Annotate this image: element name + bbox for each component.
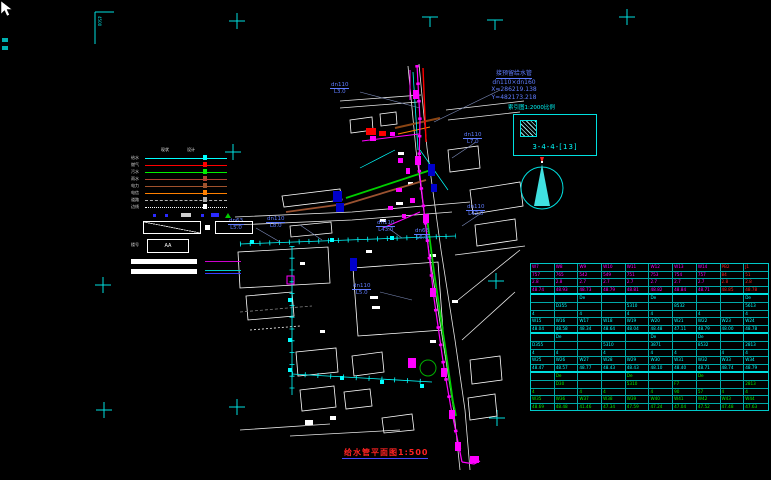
pipe-label: dn110L8.0 <box>266 216 285 229</box>
table-cell: 4 <box>697 311 721 318</box>
table-cell: W43 <box>721 396 745 403</box>
table-cell <box>697 381 721 388</box>
table-cell: D355 <box>531 342 555 349</box>
table-cell: W24 <box>744 318 768 325</box>
table-cell <box>697 303 721 310</box>
legend-aa-row: 楼号 AA <box>131 239 253 253</box>
legend-header-design: 设计 <box>187 147 195 153</box>
table-cell: W8 <box>555 264 579 271</box>
table-cell: W17 <box>578 318 602 325</box>
table-cell: 48.69 <box>531 404 555 411</box>
table-row: W35W36W37W38W39W40W41W42W43W44 <box>531 396 768 404</box>
table-cell: 48.73 <box>578 287 602 294</box>
table-cell: 47.48 <box>721 404 745 411</box>
table-cell: 4 <box>578 311 602 318</box>
table-row: W25W26W27W28W29W30W31W32W33W34 <box>531 357 768 365</box>
table-cell: W33 <box>721 357 745 364</box>
table-group: W7W8W9W10W11W12W13W14PB2J175776554254975… <box>531 264 768 295</box>
table-cell: W20 <box>649 318 673 325</box>
table-cell <box>721 311 745 318</box>
table-cell: 2.7 <box>673 279 697 286</box>
table-cell: 2.7 <box>626 279 650 286</box>
table-cell: 2.7 <box>602 279 626 286</box>
table-cell: 3871 <box>649 342 673 349</box>
table-cell: 48.34 <box>578 326 602 333</box>
table-cell <box>649 381 673 388</box>
table-cell: 757 <box>697 272 721 279</box>
table-cell: 48.43 <box>602 365 626 372</box>
table-cell: 4 <box>744 389 768 396</box>
legend-item: 边线 <box>131 204 253 211</box>
table-cell: W30 <box>649 357 673 364</box>
table-cell: 542 <box>578 272 602 279</box>
table-cell: 48.78 <box>744 326 768 333</box>
table-cell: 47.52 <box>697 404 721 411</box>
table-cell: 8532 <box>673 303 697 310</box>
table-cell <box>649 303 673 310</box>
table-cell <box>697 350 721 357</box>
table-cell: 4 <box>531 389 555 396</box>
table-cell: F7 <box>673 381 697 388</box>
table-cell <box>721 381 745 388</box>
north-arrow <box>521 157 563 209</box>
table-row: 48.6948.4841.4647.3447.5947.2447.0447.52… <box>531 404 768 411</box>
table-row: DeDeDe <box>531 373 768 381</box>
table-cell <box>626 334 650 341</box>
table-cell <box>626 350 650 357</box>
table-cell: 4 <box>649 350 673 357</box>
cyan-key-line <box>205 270 241 271</box>
table-cell: De <box>626 373 650 380</box>
legend-item: 给水 <box>131 155 253 162</box>
hydrant-symbols <box>250 236 424 388</box>
table-cell: 47.34 <box>602 404 626 411</box>
legend-item: 雨水 <box>131 176 253 183</box>
table-cell: 2813 <box>744 342 768 349</box>
table-cell: 48.64 <box>602 326 626 333</box>
table-cell: 48.71 <box>697 287 721 294</box>
mouse-cursor <box>0 0 14 18</box>
road-edges <box>235 64 525 470</box>
drawing-title-underline <box>342 458 428 459</box>
table-cell: 48.81 <box>626 287 650 294</box>
valve-nodes <box>370 90 479 463</box>
table-cell: 48.74 <box>531 287 555 294</box>
table-cell: De <box>555 334 579 341</box>
table-cell: 48.85 <box>721 287 745 294</box>
table-cell <box>649 373 673 380</box>
table-cell <box>578 334 602 341</box>
table-cell: 47.59 <box>626 404 650 411</box>
table-cell: W42 <box>697 396 721 403</box>
pipe-label: dn110L43.0 <box>376 220 395 233</box>
table-cell: W22 <box>697 318 721 325</box>
hatch-swatch-icon <box>520 120 537 137</box>
table-row: 48.4748.5748.7748.4348.4348.1048.4048.71… <box>531 365 768 372</box>
table-cell: J1 <box>744 264 768 271</box>
table-cell: W39 <box>626 396 650 403</box>
table-cell: W44 <box>744 396 768 403</box>
table-row: DeDeDe <box>531 334 768 342</box>
table-cell: De <box>649 295 673 302</box>
table-cell <box>602 334 626 341</box>
table-cell: 51 <box>744 272 768 279</box>
table-cell <box>555 311 579 318</box>
table-cell <box>697 295 721 302</box>
table-cell: 47.11 <box>673 326 697 333</box>
table-cell: 2.7 <box>578 279 602 286</box>
table-cell: 4 <box>649 389 673 396</box>
table-cell: 4 <box>555 350 579 357</box>
connection-annotation: 接预留给水管 dn110×dn160 X=286219.138 Y=482173… <box>468 70 560 101</box>
table-row: 7577655425497517537547578451 <box>531 272 768 280</box>
table-cell <box>555 342 579 349</box>
table-cell: 8532 <box>697 342 721 349</box>
table-cell: W14 <box>697 264 721 271</box>
coordinate-y: Y=482173.218 <box>492 94 537 101</box>
table-cell <box>673 373 697 380</box>
table-cell: 48.40 <box>673 365 697 372</box>
table-cell: 48.48 <box>555 404 579 411</box>
table-cell: W10 <box>602 264 626 271</box>
table-cell <box>578 381 602 388</box>
table-cell <box>531 295 555 302</box>
table-cell: 4 <box>721 389 745 396</box>
table-cell: W31 <box>673 357 697 364</box>
legend-panel: 现状 设计 给水燃气污水雨水电力电信道路边线 楼号 AA <box>131 147 253 203</box>
table-cell <box>744 373 768 380</box>
table-cell: 4 <box>744 311 768 318</box>
table-cell: 751 <box>626 272 650 279</box>
legend-item: 污水 <box>131 169 253 176</box>
table-row: W15W16W17W18W19W20W21W22W23W24 <box>531 318 768 326</box>
table-cell: 48.78 <box>744 287 768 294</box>
table-cell: D355 <box>555 303 579 310</box>
table-cell <box>531 381 555 388</box>
table-cell: 48.79 <box>744 365 768 372</box>
table-cell: W16 <box>555 318 579 325</box>
table-cell <box>721 373 745 380</box>
magenta-key-line <box>205 261 241 262</box>
legend-symbol-row <box>145 213 245 219</box>
table-cell: W29 <box>626 357 650 364</box>
table-cell: W21 <box>673 318 697 325</box>
table-cell: 5613 <box>744 303 768 310</box>
legend-aa-box: AA <box>147 239 189 253</box>
table-cell: 2.8 <box>721 279 745 286</box>
table-row: DeDeDe <box>531 295 768 303</box>
table-cell: W11 <box>626 264 650 271</box>
table-cell: W37 <box>578 396 602 403</box>
pipe-label: dn110L3.0 <box>330 82 349 95</box>
table-row: 48.0448.5848.3448.6448.0448.4847.1148.79… <box>531 326 768 333</box>
table-cell: 41.46 <box>578 404 602 411</box>
table-cell: W25 <box>531 357 555 364</box>
table-cell <box>531 303 555 310</box>
legend-item: 道路 <box>131 197 253 204</box>
table-cell: 754 <box>673 272 697 279</box>
table-cell: 47.24 <box>649 404 673 411</box>
table-cell: 4 <box>744 350 768 357</box>
table-cell <box>578 350 602 357</box>
table-cell <box>531 334 555 341</box>
table-cell: W36 <box>555 396 579 403</box>
table-cell <box>744 334 768 341</box>
table-cell <box>602 373 626 380</box>
table-cell <box>578 373 602 380</box>
table-cell: W28 <box>602 357 626 364</box>
table-cell <box>602 295 626 302</box>
table-row: W7W8W9W10W11W12W13W14PB2J1 <box>531 264 768 272</box>
table-group: DeDeDeD35553103871853228134444444W25W26W… <box>531 334 768 373</box>
cad-sheet[interactable]: 4500 dn110L3.0 dn63L5.0 dn110L8.0 dn110L… <box>0 0 771 480</box>
table-cell: 5310 <box>602 342 626 349</box>
table-cell: 48.79 <box>602 287 626 294</box>
table-cell: 4 <box>531 311 555 318</box>
table-cell <box>626 389 650 396</box>
table-cell <box>626 342 650 349</box>
connection-title: 接预留给水管 <box>496 70 532 79</box>
table-cell: W34 <box>744 357 768 364</box>
table-cell: W13 <box>673 264 697 271</box>
table-cell: De <box>697 373 721 380</box>
table-cell: 4 <box>531 350 555 357</box>
table-cell: W35 <box>531 396 555 403</box>
table-cell: PB2 <box>721 264 745 271</box>
table-cell: 48.84 <box>673 287 697 294</box>
table-cell: 5310 <box>626 303 650 310</box>
table-cell: 4 <box>602 350 626 357</box>
table-cell: W18 <box>602 318 626 325</box>
table-cell: 48.71 <box>697 365 721 372</box>
table-group: DeDeDeD305310F728134444905744W35W36W37W3… <box>531 373 768 410</box>
table-row: 48.7448.9348.7348.7948.8148.8248.8448.71… <box>531 287 768 294</box>
table-cell: 48.82 <box>649 287 673 294</box>
table-cell: 48.57 <box>555 365 579 372</box>
table-group: DeDeDeD355531085325613444444W15W16W17W18… <box>531 295 768 334</box>
coordinate-x: X=286219.138 <box>491 86 536 93</box>
table-cell: De <box>649 334 673 341</box>
table-cell: W9 <box>578 264 602 271</box>
table-cell: W7 <box>531 264 555 271</box>
table-cell: W26 <box>555 357 579 364</box>
table-cell: 48.93 <box>555 287 579 294</box>
table-cell: 90 <box>673 389 697 396</box>
table-row: 4444444 <box>531 350 768 358</box>
magenta-main-pipe <box>287 65 480 464</box>
table-cell: W27 <box>578 357 602 364</box>
table-cell: 47.63 <box>744 404 768 411</box>
table-row: D355531085325613 <box>531 303 768 311</box>
table-cell: 4 <box>721 350 745 357</box>
table-cell <box>673 295 697 302</box>
table-cell <box>721 295 745 302</box>
table-cell: 549 <box>602 272 626 279</box>
table-cell <box>555 295 579 302</box>
table-cell: 2.7 <box>697 279 721 286</box>
pipe-label: dn110L5.0 <box>352 283 371 296</box>
table-cell: 48.04 <box>531 326 555 333</box>
scale-bar-1 <box>131 259 197 264</box>
table-cell: 4 <box>649 311 673 318</box>
table-cell: 4 <box>626 311 650 318</box>
table-cell: 48.04 <box>626 326 650 333</box>
table-cell: 757 <box>531 272 555 279</box>
table-cell: 47.04 <box>673 404 697 411</box>
table-cell: 2813 <box>744 381 768 388</box>
table-cell: 4 <box>673 350 697 357</box>
table-cell: 48.77 <box>578 365 602 372</box>
table-cell <box>673 334 697 341</box>
table-cell <box>721 303 745 310</box>
detail-reference-number: 3-4-4-[13] <box>514 143 596 151</box>
table-cell: W15 <box>531 318 555 325</box>
pipe-label: dn110L7.0 <box>463 132 482 145</box>
scale-bar-2 <box>131 269 197 274</box>
corner-mark-text: 4500 <box>97 16 101 26</box>
index-scale-label: 索引图1:2000比例 <box>508 103 555 111</box>
table-cell: 84 <box>721 272 745 279</box>
table-cell: De <box>578 295 602 302</box>
table-cell: 48.48 <box>649 326 673 333</box>
table-cell: 48.47 <box>531 365 555 372</box>
table-cell: W19 <box>626 318 650 325</box>
legend-header-existing: 现状 <box>161 147 169 153</box>
table-cell: W41 <box>673 396 697 403</box>
elevation-table: W7W8W9W10W11W12W13W14PB2J175776554254975… <box>530 263 769 411</box>
table-cell: D30 <box>555 381 579 388</box>
pipe-label: dn63L6.0 <box>414 228 430 241</box>
detail-reference-box: 3-4-4-[13] <box>513 114 597 156</box>
legend-aa-label: 楼号 <box>131 242 139 248</box>
connection-size: dn110×dn160 <box>492 79 535 86</box>
table-cell <box>673 342 697 349</box>
table-cell: 48.43 <box>626 365 650 372</box>
table-cell: 48.00 <box>721 326 745 333</box>
table-cell: W23 <box>721 318 745 325</box>
drawing-title: 给水管平面图1:500 <box>344 447 428 458</box>
building-outlines <box>238 112 523 433</box>
table-cell: De <box>555 373 579 380</box>
pipe-label: dn110L42.0 <box>466 204 485 217</box>
table-cell <box>531 373 555 380</box>
table-cell: 48.74 <box>721 365 745 372</box>
table-cell: 753 <box>649 272 673 279</box>
table-row: 2.82.82.72.72.72.72.72.72.82.8 <box>531 279 768 287</box>
table-cell: W38 <box>602 396 626 403</box>
legend-item: 燃气 <box>131 162 253 169</box>
table-cell: 48.10 <box>649 365 673 372</box>
table-row: 444444 <box>531 311 768 319</box>
legend-rows: 给水燃气污水雨水电力电信道路边线 <box>131 155 253 211</box>
table-cell <box>555 389 579 396</box>
legend-item: 电信 <box>131 190 253 197</box>
table-cell: De <box>697 334 721 341</box>
table-cell: W40 <box>649 396 673 403</box>
table-cell: 2.8 <box>531 279 555 286</box>
table-cell: De <box>744 295 768 302</box>
table-cell: 4 <box>578 389 602 396</box>
table-cell: 765 <box>555 272 579 279</box>
table-cell: W32 <box>697 357 721 364</box>
table-cell <box>721 342 745 349</box>
table-cell: 5310 <box>626 381 650 388</box>
table-cell: W12 <box>649 264 673 271</box>
table-cell: 2.8 <box>555 279 579 286</box>
table-cell: 4 <box>602 389 626 396</box>
table-cell: 48.58 <box>555 326 579 333</box>
table-cell <box>602 381 626 388</box>
table-cell: 48.79 <box>697 326 721 333</box>
table-cell <box>721 334 745 341</box>
legend-item: 电力 <box>131 183 253 190</box>
table-cell <box>673 311 697 318</box>
table-cell: 2.8 <box>744 279 768 286</box>
table-cell: 2.7 <box>649 279 673 286</box>
table-row: D305310F72813 <box>531 381 768 389</box>
table-cell <box>626 295 650 302</box>
blue-key-line <box>205 273 241 274</box>
table-cell <box>578 342 602 349</box>
table-cell <box>602 311 626 318</box>
table-cell <box>578 303 602 310</box>
table-cell <box>602 303 626 310</box>
legend-wall-row <box>131 221 253 235</box>
tree-symbol <box>420 360 436 376</box>
table-row: 4444905744 <box>531 389 768 397</box>
table-cell: 57 <box>697 389 721 396</box>
table-row: D3555310387185322813 <box>531 342 768 350</box>
